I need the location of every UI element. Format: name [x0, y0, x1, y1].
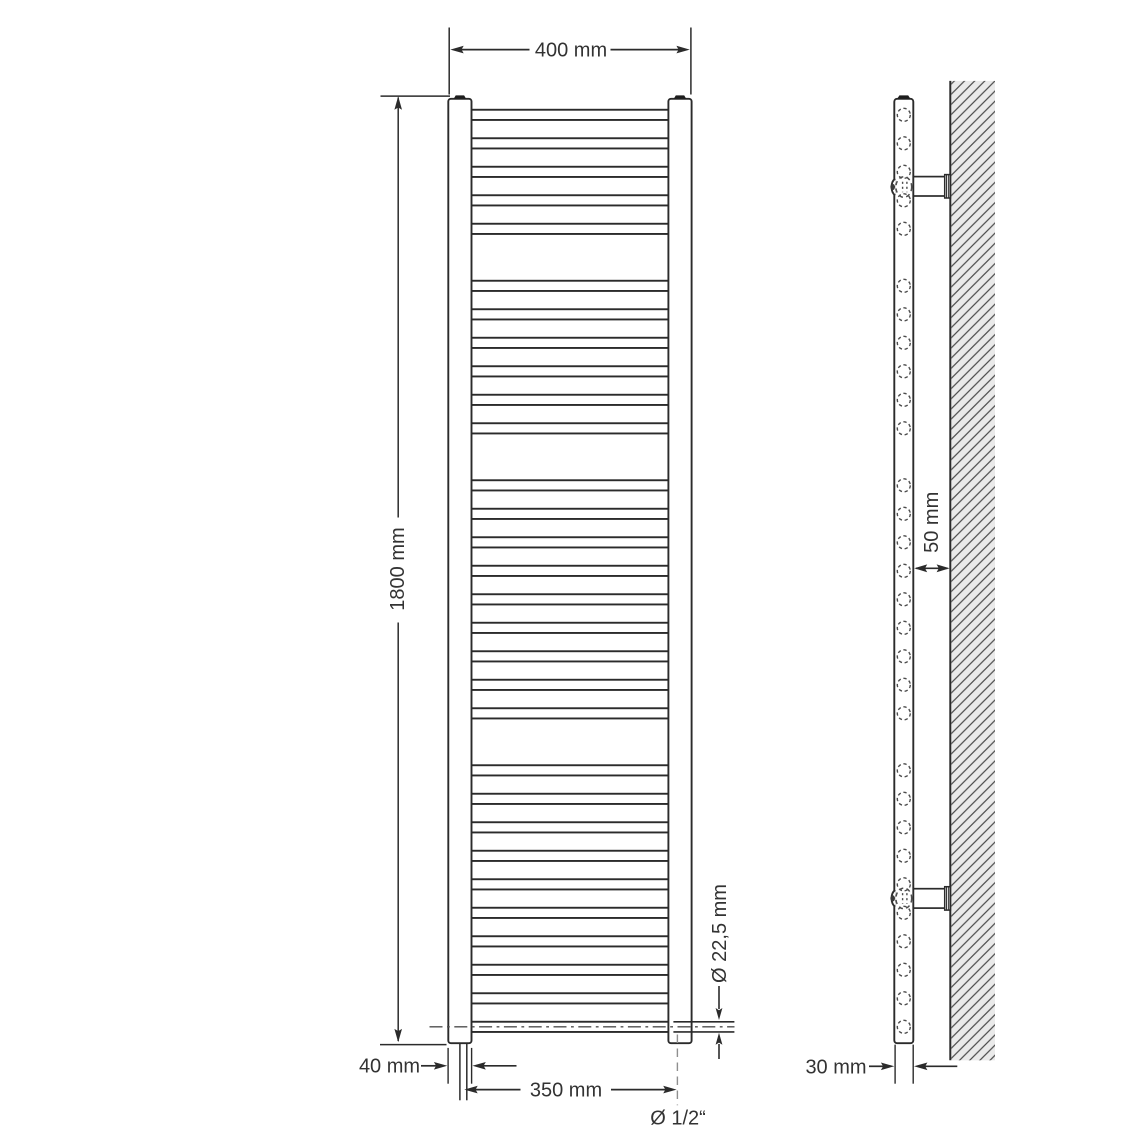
svg-text:40 mm: 40 mm — [359, 1056, 420, 1078]
svg-text:50 mm: 50 mm — [921, 492, 943, 553]
svg-text:Ø 22,5 mm: Ø 22,5 mm — [709, 884, 731, 983]
svg-text:Ø 1/2“: Ø 1/2“ — [650, 1108, 706, 1130]
svg-text:350 mm: 350 mm — [530, 1079, 602, 1101]
svg-text:1800 mm: 1800 mm — [387, 527, 409, 610]
svg-text:400 mm: 400 mm — [535, 40, 607, 62]
svg-text:30 mm: 30 mm — [805, 1056, 866, 1078]
